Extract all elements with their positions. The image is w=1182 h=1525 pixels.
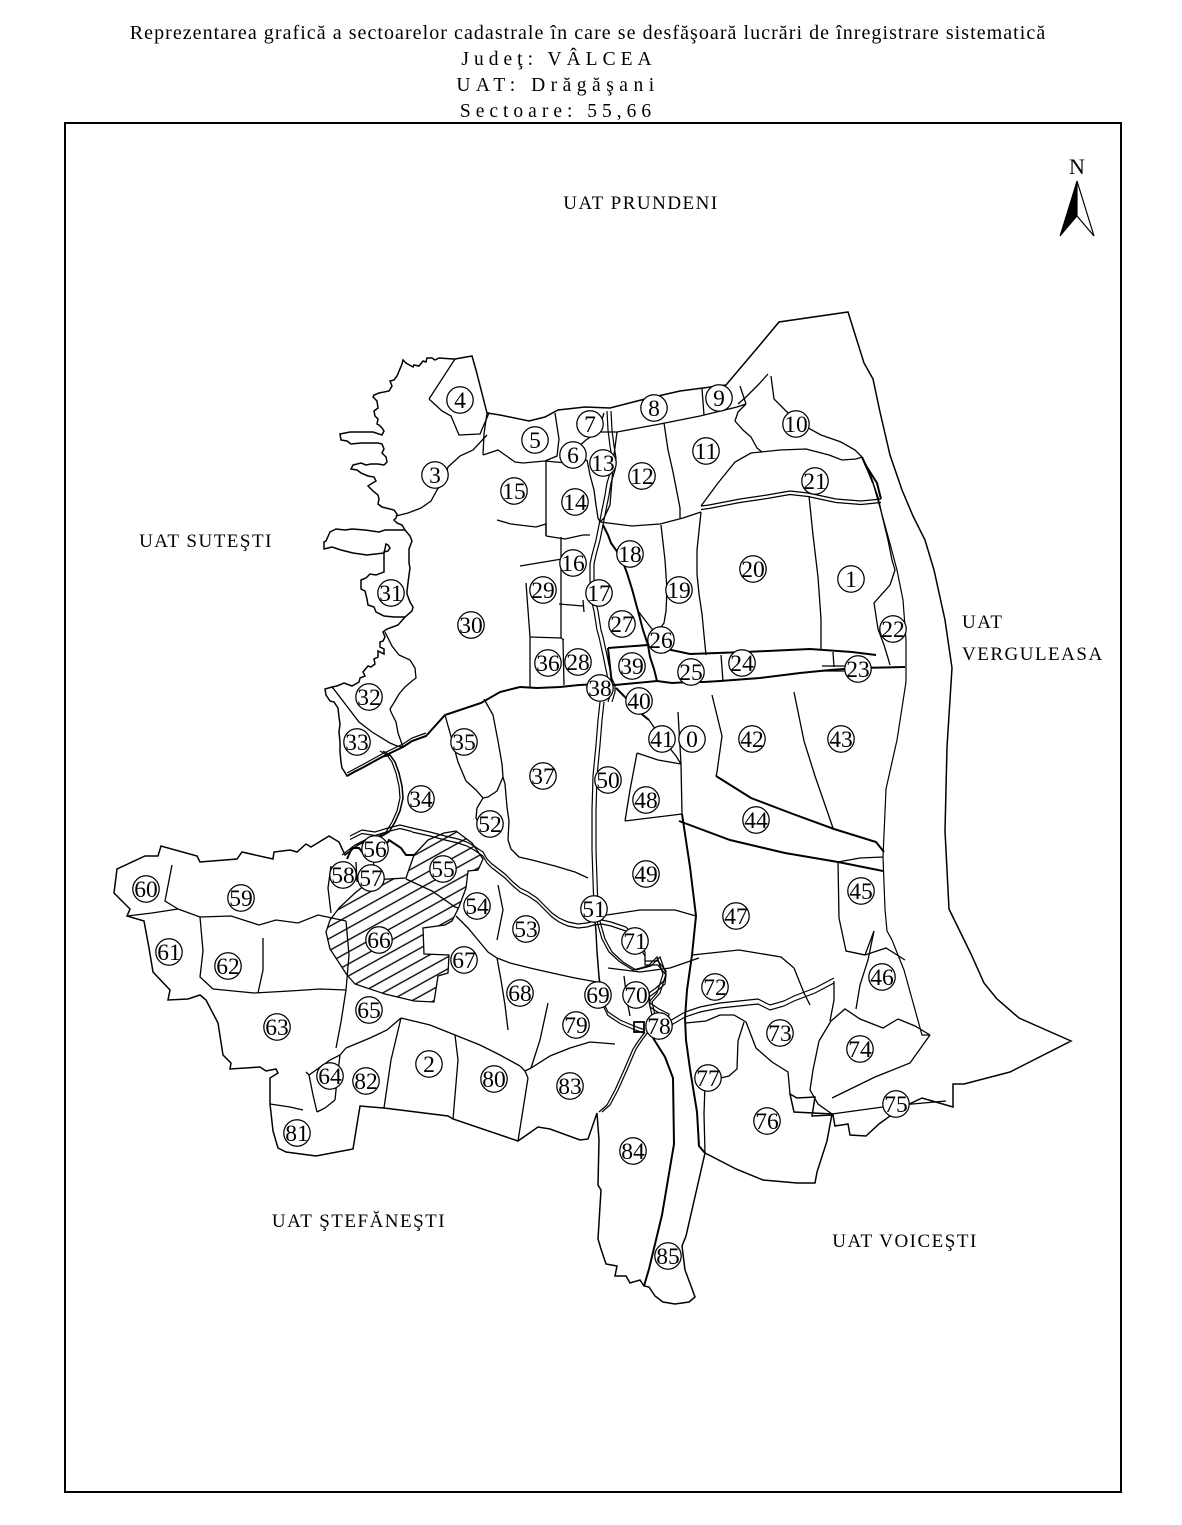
svg-text:51: 51 [582, 897, 606, 923]
svg-text:31: 31 [379, 581, 403, 607]
svg-text:56: 56 [363, 837, 387, 863]
svg-text:8: 8 [648, 396, 660, 422]
svg-text:78: 78 [647, 1014, 671, 1040]
svg-text:Judeţ: VÂLCEA: Judeţ: VÂLCEA [461, 48, 656, 70]
svg-text:49: 49 [634, 862, 658, 888]
svg-text:53: 53 [514, 917, 538, 943]
svg-text:3: 3 [429, 463, 441, 489]
svg-text:48: 48 [634, 788, 658, 814]
svg-text:52: 52 [478, 812, 502, 838]
svg-text:2: 2 [423, 1052, 435, 1078]
svg-text:36: 36 [536, 651, 560, 677]
svg-text:69: 69 [586, 983, 610, 1009]
svg-text:64: 64 [318, 1064, 342, 1090]
svg-text:75: 75 [884, 1092, 908, 1118]
svg-text:VERGULEASA: VERGULEASA [962, 644, 1104, 665]
svg-text:UAT ŞTEFĂNEŞTI: UAT ŞTEFĂNEŞTI [272, 1211, 446, 1232]
svg-text:UAT PRUNDENI: UAT PRUNDENI [563, 193, 718, 214]
svg-text:16: 16 [561, 551, 585, 577]
svg-text:79: 79 [564, 1013, 588, 1039]
svg-text:74: 74 [848, 1037, 872, 1063]
svg-text:19: 19 [667, 578, 691, 604]
svg-text:7: 7 [584, 412, 596, 438]
svg-text:57: 57 [359, 866, 383, 892]
svg-text:11: 11 [695, 439, 718, 465]
svg-text:55: 55 [431, 857, 455, 883]
svg-text:5: 5 [529, 428, 541, 454]
svg-text:83: 83 [558, 1074, 582, 1100]
svg-text:13: 13 [591, 451, 615, 477]
svg-text:65: 65 [357, 998, 381, 1024]
svg-text:46: 46 [870, 965, 894, 991]
svg-text:66: 66 [367, 928, 391, 954]
svg-text:Sectoare: 55,66: Sectoare: 55,66 [460, 101, 656, 122]
svg-text:59: 59 [229, 886, 253, 912]
svg-text:45: 45 [849, 879, 873, 905]
svg-text:43: 43 [829, 727, 853, 753]
svg-text:63: 63 [265, 1015, 289, 1041]
svg-text:17: 17 [587, 581, 611, 607]
svg-text:18: 18 [618, 542, 642, 568]
svg-text:54: 54 [465, 894, 489, 920]
svg-text:84: 84 [621, 1139, 645, 1165]
svg-text:27: 27 [610, 612, 634, 638]
svg-text:39: 39 [620, 654, 644, 680]
svg-text:20: 20 [741, 557, 765, 583]
svg-text:42: 42 [740, 727, 764, 753]
svg-text:UAT: Drăgăşani: UAT: Drăgăşani [456, 75, 659, 96]
svg-text:UAT VOICEŞTI: UAT VOICEŞTI [832, 1231, 978, 1252]
svg-text:Reprezentarea grafică a sectoa: Reprezentarea grafică a sectoarelor cada… [130, 22, 1047, 44]
svg-text:77: 77 [696, 1066, 720, 1092]
svg-text:47: 47 [724, 904, 748, 930]
svg-text:40: 40 [627, 689, 651, 715]
svg-text:23: 23 [846, 657, 870, 683]
svg-text:60: 60 [134, 877, 158, 903]
svg-text:62: 62 [216, 954, 240, 980]
svg-text:50: 50 [596, 768, 620, 794]
svg-text:UAT: UAT [962, 612, 1003, 633]
svg-text:28: 28 [566, 650, 590, 676]
svg-text:1: 1 [845, 567, 857, 593]
svg-text:72: 72 [703, 975, 727, 1001]
svg-text:32: 32 [357, 685, 381, 711]
svg-text:0: 0 [686, 727, 698, 753]
svg-text:N: N [1069, 154, 1085, 179]
svg-text:68: 68 [508, 981, 532, 1007]
svg-text:4: 4 [454, 388, 466, 414]
svg-text:71: 71 [623, 929, 647, 955]
svg-text:22: 22 [881, 617, 905, 643]
svg-text:26: 26 [649, 628, 673, 654]
svg-text:14: 14 [563, 490, 587, 516]
svg-text:12: 12 [630, 464, 654, 490]
svg-text:35: 35 [452, 730, 476, 756]
svg-text:44: 44 [744, 808, 768, 834]
svg-text:70: 70 [624, 983, 648, 1009]
svg-text:29: 29 [531, 578, 555, 604]
svg-text:38: 38 [588, 676, 612, 702]
svg-text:67: 67 [452, 948, 476, 974]
svg-text:34: 34 [409, 787, 433, 813]
svg-text:25: 25 [679, 660, 703, 686]
svg-text:76: 76 [755, 1109, 779, 1135]
svg-text:24: 24 [730, 651, 754, 677]
svg-text:30: 30 [459, 613, 483, 639]
svg-text:15: 15 [502, 479, 526, 505]
svg-text:82: 82 [354, 1069, 378, 1095]
svg-text:21: 21 [803, 469, 827, 495]
svg-text:85: 85 [656, 1244, 680, 1270]
svg-text:6: 6 [567, 443, 579, 469]
svg-text:58: 58 [331, 863, 355, 889]
svg-text:41: 41 [650, 727, 674, 753]
svg-text:UAT SUTEŞTI: UAT SUTEŞTI [139, 531, 273, 552]
svg-text:73: 73 [768, 1021, 792, 1047]
svg-text:10: 10 [784, 412, 808, 438]
svg-text:61: 61 [157, 940, 181, 966]
svg-text:81: 81 [285, 1121, 309, 1147]
svg-text:80: 80 [482, 1067, 506, 1093]
svg-text:33: 33 [345, 730, 369, 756]
svg-text:9: 9 [713, 386, 725, 412]
svg-text:37: 37 [531, 764, 555, 790]
